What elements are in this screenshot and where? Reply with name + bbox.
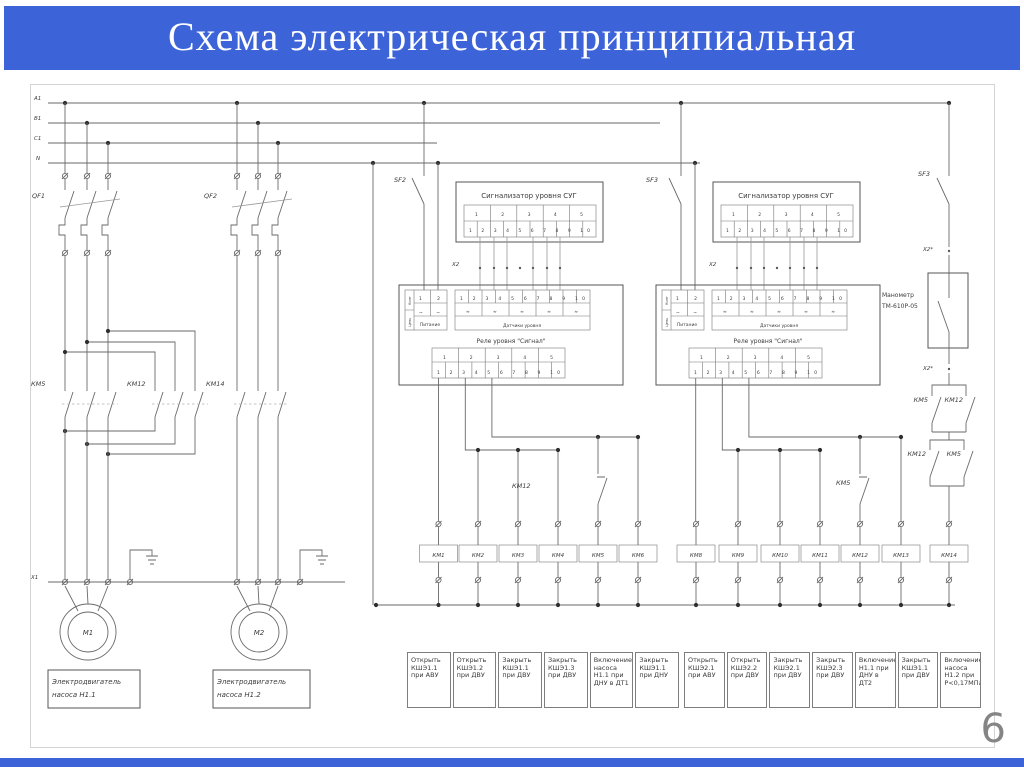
page-number: 6 xyxy=(981,706,1006,752)
x2-star-label-2: Х2* xyxy=(922,366,933,372)
coil-km8-label: КМ8 xyxy=(690,553,703,559)
level-relay-box-1: Конт Цепь 1 2 ~ ~ Питание 1 2 3 4 5 6 7 … xyxy=(399,285,623,385)
relay-2-power-numbers: 1 2 xyxy=(676,296,697,302)
switch-sf3-mid: SF3 xyxy=(646,103,681,290)
relay-2-sensor-caption: Датчики уровня xyxy=(760,323,798,329)
signalizer-1-title: Сигнализатор уровня СУГ xyxy=(481,192,576,200)
series-contact-km12-label: КМ12 xyxy=(512,482,531,490)
signalizer-2-bottom-numbers: 1 2 3 4 5 6 7 8 9 10 xyxy=(726,228,847,234)
coil-km11-label: КМ11 xyxy=(812,553,828,559)
coil-km1-label: КМ1 xyxy=(432,553,444,559)
relay-2-power-header-1: Конт xyxy=(665,296,669,305)
description-row-right: ОткрытьКШЭ2.1при АВУ ОткрытьКШЭ2.2при ДВ… xyxy=(684,652,981,708)
manometer-label-line2: ТМ-610Р-05 xyxy=(881,303,918,310)
x2-star-label-1: Х2* xyxy=(922,247,933,253)
relay-1-caption: Реле уровня "Сигнал" xyxy=(477,338,546,345)
coil-km12-label: КМ12 xyxy=(852,553,868,559)
switch-sf3-right: SF3 Х2* xyxy=(918,103,950,273)
coil-row: КМ1 КМ2 КМ3 КМ4 КМ5 КМ6 КМ8 КМ9 К xyxy=(420,521,969,605)
relay-2-power-symbols: ~ ~ xyxy=(676,311,697,316)
pressure-contact-km12-label-2: КМ12 xyxy=(908,450,927,458)
bus-label-c1: С1 xyxy=(34,136,41,142)
manometer-label-line1: Манометр xyxy=(882,292,914,299)
motor-m1-caption-box xyxy=(48,670,140,708)
coil-km9-label: КМ9 xyxy=(732,553,745,559)
coil-km6-label: КМ6 xyxy=(632,553,645,559)
ground-symbol-1 xyxy=(130,550,158,579)
ground-symbol-2 xyxy=(300,550,328,579)
description-row-left: ОткрытьКШЭ1.1при АВУ ОткрытьКШЭ1.2при ДВ… xyxy=(407,652,679,708)
motor-m2-caption-box xyxy=(213,670,310,708)
contactor-km5-label: КМ5 xyxy=(31,380,45,388)
power-bus-lines: А1 В1 С1 N xyxy=(33,96,951,165)
coil-km10-label: КМ10 xyxy=(772,553,788,559)
coil-km4-label: КМ4 xyxy=(552,553,565,559)
series-contact-km5-label: КМ5 xyxy=(836,479,850,487)
x2-terminal-row-2: X2 xyxy=(708,237,818,290)
description-cell: ОткрытьКШЭ2.2при ДВУ xyxy=(727,652,768,708)
contactor-km14-label: КМ14 xyxy=(206,380,225,388)
motor-m2-caption-line2: насоса Н1.2 xyxy=(217,691,261,699)
bus-label-n: N xyxy=(36,156,40,162)
relay-2-caption: Реле уровня "Сигнал" xyxy=(734,338,803,345)
description-cell: ОткрытьКШЭ1.2при ДВУ xyxy=(453,652,497,708)
coil-km5-label: КМ5 xyxy=(592,553,605,559)
coil-km3-label: КМ3 xyxy=(512,553,525,559)
signalizer-1-bottom-numbers: 1 2 3 4 5 6 7 8 9 10 xyxy=(469,228,590,234)
bus-label-a1: А1 xyxy=(33,96,41,102)
description-cell: ЗакрытьКШЭ1.1при ДВУ xyxy=(498,652,542,708)
description-cell: ЗакрытьКШЭ2.3при ДВУ xyxy=(812,652,853,708)
description-cell: ЗакрытьКШЭ1.1при ДВУ xyxy=(898,652,939,708)
coil-distribution-wiring-right: КМ5 xyxy=(696,378,903,521)
description-cell: ЗакрытьКШЭ1.1при ДНУ xyxy=(635,652,679,708)
relay-1-power-symbols: ~ ~ xyxy=(419,311,440,316)
switch-sf2: SF2 xyxy=(394,103,424,290)
description-cell: ВключениеН1.1 приДНУ в ДТ2 xyxy=(855,652,896,708)
relay-1-power-header-1: Конт xyxy=(408,296,412,305)
description-cell: ОткрытьКШЭ2.1при АВУ xyxy=(684,652,725,708)
level-relay-box-2: Конт Цепь 1 2 ~ ~ Питание 1 2 3 4 5 6 7 … xyxy=(656,285,880,385)
signalizer-2-top-numbers: 1 2 3 4 5 xyxy=(732,212,840,218)
signalizer-1-top-numbers: 1 2 3 4 5 xyxy=(475,212,583,218)
signalizer-2-title: Сигнализатор уровня СУГ xyxy=(738,192,833,200)
relay-1-sensor-symbols: ≈ ≈ ≈ ≈ ≈ xyxy=(466,310,578,315)
relay-2-power-header-2: Цепь xyxy=(665,318,669,327)
contactor-km14: КМ14 xyxy=(206,256,288,579)
motor-m2-caption-line1: Электродвигатель xyxy=(216,678,286,686)
motor-m1-caption-line1: Электродвигатель xyxy=(51,678,121,686)
manometer-box: Манометр ТМ-610Р-05 xyxy=(881,273,968,348)
description-cell: ВключениенасосаН1.2 приР<0,17МПа xyxy=(940,652,981,708)
x1-label: X1 xyxy=(30,575,38,581)
pressure-contact-km5-label-1: КМ5 xyxy=(914,396,928,404)
coil-km13-label: КМ13 xyxy=(893,553,909,559)
description-cell: ЗакрытьКШЭ1.3при ДВУ xyxy=(544,652,588,708)
footer-bar xyxy=(0,758,1024,767)
motor-m2: М2 Электродвигатель насоса Н1.2 xyxy=(213,586,310,708)
signalizer-box-1: Сигнализатор уровня СУГ 1 2 3 4 5 1 2 3 … xyxy=(456,182,603,242)
relay-1-output-top-numbers: 1 2 3 4 5 xyxy=(443,355,553,361)
switch-sf3-mid-label: SF3 xyxy=(646,176,658,184)
contactor-km12-label: КМ12 xyxy=(127,380,146,388)
coil-km2-label: КМ2 xyxy=(472,553,485,559)
relay-1-power-numbers: 1 2 xyxy=(419,296,440,302)
motor-m1: М1 Электродвигатель насоса Н1.1 xyxy=(48,586,140,708)
breaker-qf1: QF1 xyxy=(32,103,120,256)
motor-m1-label: М1 xyxy=(83,629,94,637)
relay-2-output-top-numbers: 1 2 3 4 5 xyxy=(700,355,810,361)
description-cell: ЗакрытьКШЭ2.1при ДВУ xyxy=(769,652,810,708)
coil-km14-label: КМ14 xyxy=(941,553,957,559)
signalizer-box-2: Сигнализатор уровня СУГ 1 2 3 4 5 1 2 3 … xyxy=(713,182,860,242)
pressure-contact-km5-label-2: КМ5 xyxy=(947,450,961,458)
breaker-qf1-label: QF1 xyxy=(32,192,45,200)
motor-m2-label: М2 xyxy=(254,629,265,637)
pressure-contact-chain: Х2* КМ5 КМ12 КМ12 КМ5 xyxy=(908,348,976,521)
x2-label-1: X2 xyxy=(451,262,460,268)
relay-2-sensor-symbols: ≈ ≈ ≈ ≈ ≈ xyxy=(723,310,835,315)
slide: Схема электрическая принципиальная А1 В1… xyxy=(0,0,1024,767)
coil-distribution-wiring-left: КМ12 xyxy=(439,378,641,521)
motor-m1-caption-line2: насоса Н1.1 xyxy=(52,691,96,699)
breaker-qf2-label: QF2 xyxy=(204,192,217,200)
breaker-qf2: QF2 xyxy=(204,103,292,256)
relay-2-power-caption: Питание xyxy=(677,322,698,328)
switch-sf2-label: SF2 xyxy=(394,176,406,184)
relay-1-power-header-2: Цепь xyxy=(408,318,412,327)
contactor-km5-km12: КМ5 КМ12 xyxy=(31,256,208,579)
bus-label-b1: В1 xyxy=(34,116,41,122)
x2-terminal-row-1: X2 xyxy=(451,237,561,290)
x2-label-2: X2 xyxy=(708,262,717,268)
bottom-neutral-bus xyxy=(374,603,955,607)
relay-1-sensor-caption: Датчики уровня xyxy=(503,323,541,329)
description-cell: ВключениенасосаН1.1 приДНУ в ДТ1 xyxy=(590,652,634,708)
switch-sf3-right-label: SF3 xyxy=(918,170,930,178)
x1-terminal-strip: X1 xyxy=(30,550,345,585)
description-cell: ОткрытьКШЭ1.1при АВУ xyxy=(407,652,451,708)
relay-1-power-caption: Питание xyxy=(420,322,441,328)
pressure-contact-km12-label-1: КМ12 xyxy=(945,396,964,404)
